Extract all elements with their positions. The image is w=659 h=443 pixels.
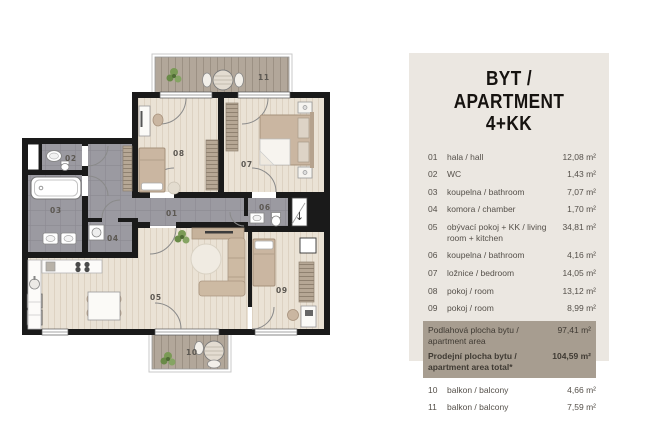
legend-row-06: 06 koupelna / bathroom 4,16 m² [423,250,596,261]
row-number: 08 [423,286,447,297]
room-label-04: 04 [107,234,119,243]
row-name: komora / chamber [447,204,567,215]
row-area: 8,99 m² [567,303,596,314]
summary-area: 104,59 m² [552,351,591,362]
row-name: koupelna / bathroom [447,187,567,198]
row-area: 14,05 m² [562,268,596,279]
summary-row-floor-area: Podlahová plocha bytu / apartment area 9… [428,325,591,347]
row-area: 1,70 m² [567,204,596,215]
row-name: pokoj / room [447,286,562,297]
row-area: 7,07 m² [567,187,596,198]
row-name: balkon / balcony [447,385,567,396]
legend-row-11: 11 balkon / balcony 7,59 m² [423,402,596,413]
row-number: 10 [423,385,447,396]
row-name: pokoj / room [447,303,567,314]
apartment-title-line2: 4+KK [430,113,588,136]
room-label-02: 02 [65,154,77,163]
floor-plan-page: ↓ [0,0,659,443]
room-label-10: 10 [186,348,198,357]
summary-area: 97,41 m² [557,325,591,336]
row-name: obývací pokoj + KK / living room + kitch… [447,222,562,244]
legend-row-07: 07 ložnice / bedroom 14,05 m² [423,268,596,279]
legend-row-01: 01 hala / hall 12,08 m² [423,152,596,163]
apartment-title-line1: BYT / APARTMENT [430,68,588,113]
row-name: ložnice / bedroom [447,268,562,279]
row-area: 12,08 m² [562,152,596,163]
row-area: 1,43 m² [567,169,596,180]
row-number: 01 [423,152,447,163]
row-number: 07 [423,268,447,279]
room-label-08: 08 [173,149,185,158]
row-number: 06 [423,250,447,261]
row-area: 34,81 m² [562,222,596,233]
legend-row-04: 04 komora / chamber 1,70 m² [423,204,596,215]
legend-row-02: 02 WC 1,43 m² [423,169,596,180]
room-label-05: 05 [150,293,162,302]
summary-name: Podlahová plocha bytu / apartment area [428,325,557,347]
row-area: 13,12 m² [562,286,596,297]
legend-rows: 01 hala / hall 12,08 m² 02 WC 1,43 m² 03… [423,152,596,414]
legend-row-03: 03 koupelna / bathroom 7,07 m² [423,187,596,198]
row-number: 04 [423,204,447,215]
row-area: 7,59 m² [567,402,596,413]
area-summary-highlight: Podlahová plocha bytu / apartment area 9… [423,321,596,378]
row-number: 03 [423,187,447,198]
summary-row-total-area: Prodejní plocha bytu / apartment area to… [428,351,591,373]
row-number: 05 [423,222,447,233]
row-number: 02 [423,169,447,180]
row-number: 11 [423,402,447,413]
legend-row-05: 05 obývací pokoj + KK / living room + ki… [423,222,596,244]
room-label-11: 11 [258,73,270,82]
room-label-03: 03 [50,206,62,215]
row-name: WC [447,169,567,180]
legend-panel: BYT / APARTMENT 4+KK 01 hala / hall 12,0… [409,53,609,361]
entrance-arrow-icon: ↓ [295,210,304,223]
room-label-06: 06 [259,203,271,212]
row-area: 4,66 m² [567,385,596,396]
legend-row-09: 09 pokoj / room 8,99 m² [423,303,596,314]
room-label-07: 07 [241,160,253,169]
legend-row-10: 10 balkon / balcony 4,66 m² [423,385,596,396]
apartment-title: BYT / APARTMENT 4+KK [430,68,588,136]
entrance: ↓ [292,198,307,226]
summary-name: Prodejní plocha bytu / apartment area to… [428,351,552,373]
room-label-01: 01 [166,209,178,218]
room-label-09: 09 [276,286,288,295]
row-area: 4,16 m² [567,250,596,261]
row-number: 09 [423,303,447,314]
legend-row-08: 08 pokoj / room 13,12 m² [423,286,596,297]
row-name: koupelna / bathroom [447,250,567,261]
row-name: balkon / balcony [447,402,567,413]
row-name: hala / hall [447,152,562,163]
